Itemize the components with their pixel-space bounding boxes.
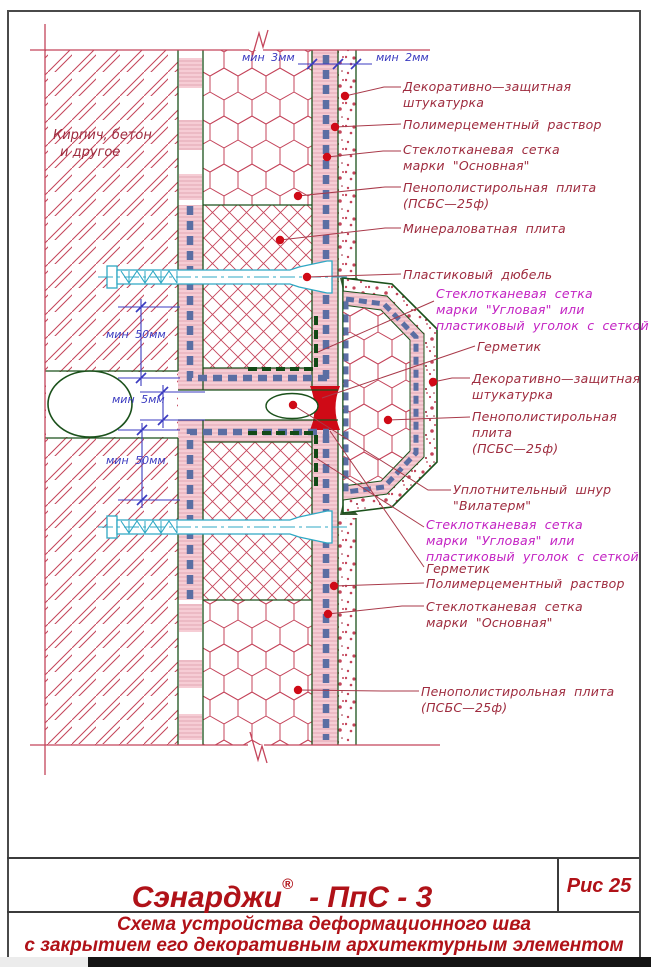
registered-mark: ® [282, 876, 293, 893]
drawing-subtitle: Схема устройства деформационного шва с з… [7, 914, 641, 956]
drawing-sheet: Кирпич, бетон и другое мин 3мм мин 2мм м… [0, 0, 651, 967]
figure-number: Рис 25 [557, 872, 641, 900]
sheet-border [7, 10, 641, 960]
drawing-title: Сэнарджи®- ПпС - 3 [7, 862, 557, 921]
titlebar-divider-top [7, 857, 639, 859]
bottom-edge-left [0, 957, 88, 967]
brand-name: Сэнарджи [132, 881, 282, 914]
bottom-edge-bar [88, 957, 651, 967]
title-code: - ПпС - 3 [309, 881, 432, 914]
